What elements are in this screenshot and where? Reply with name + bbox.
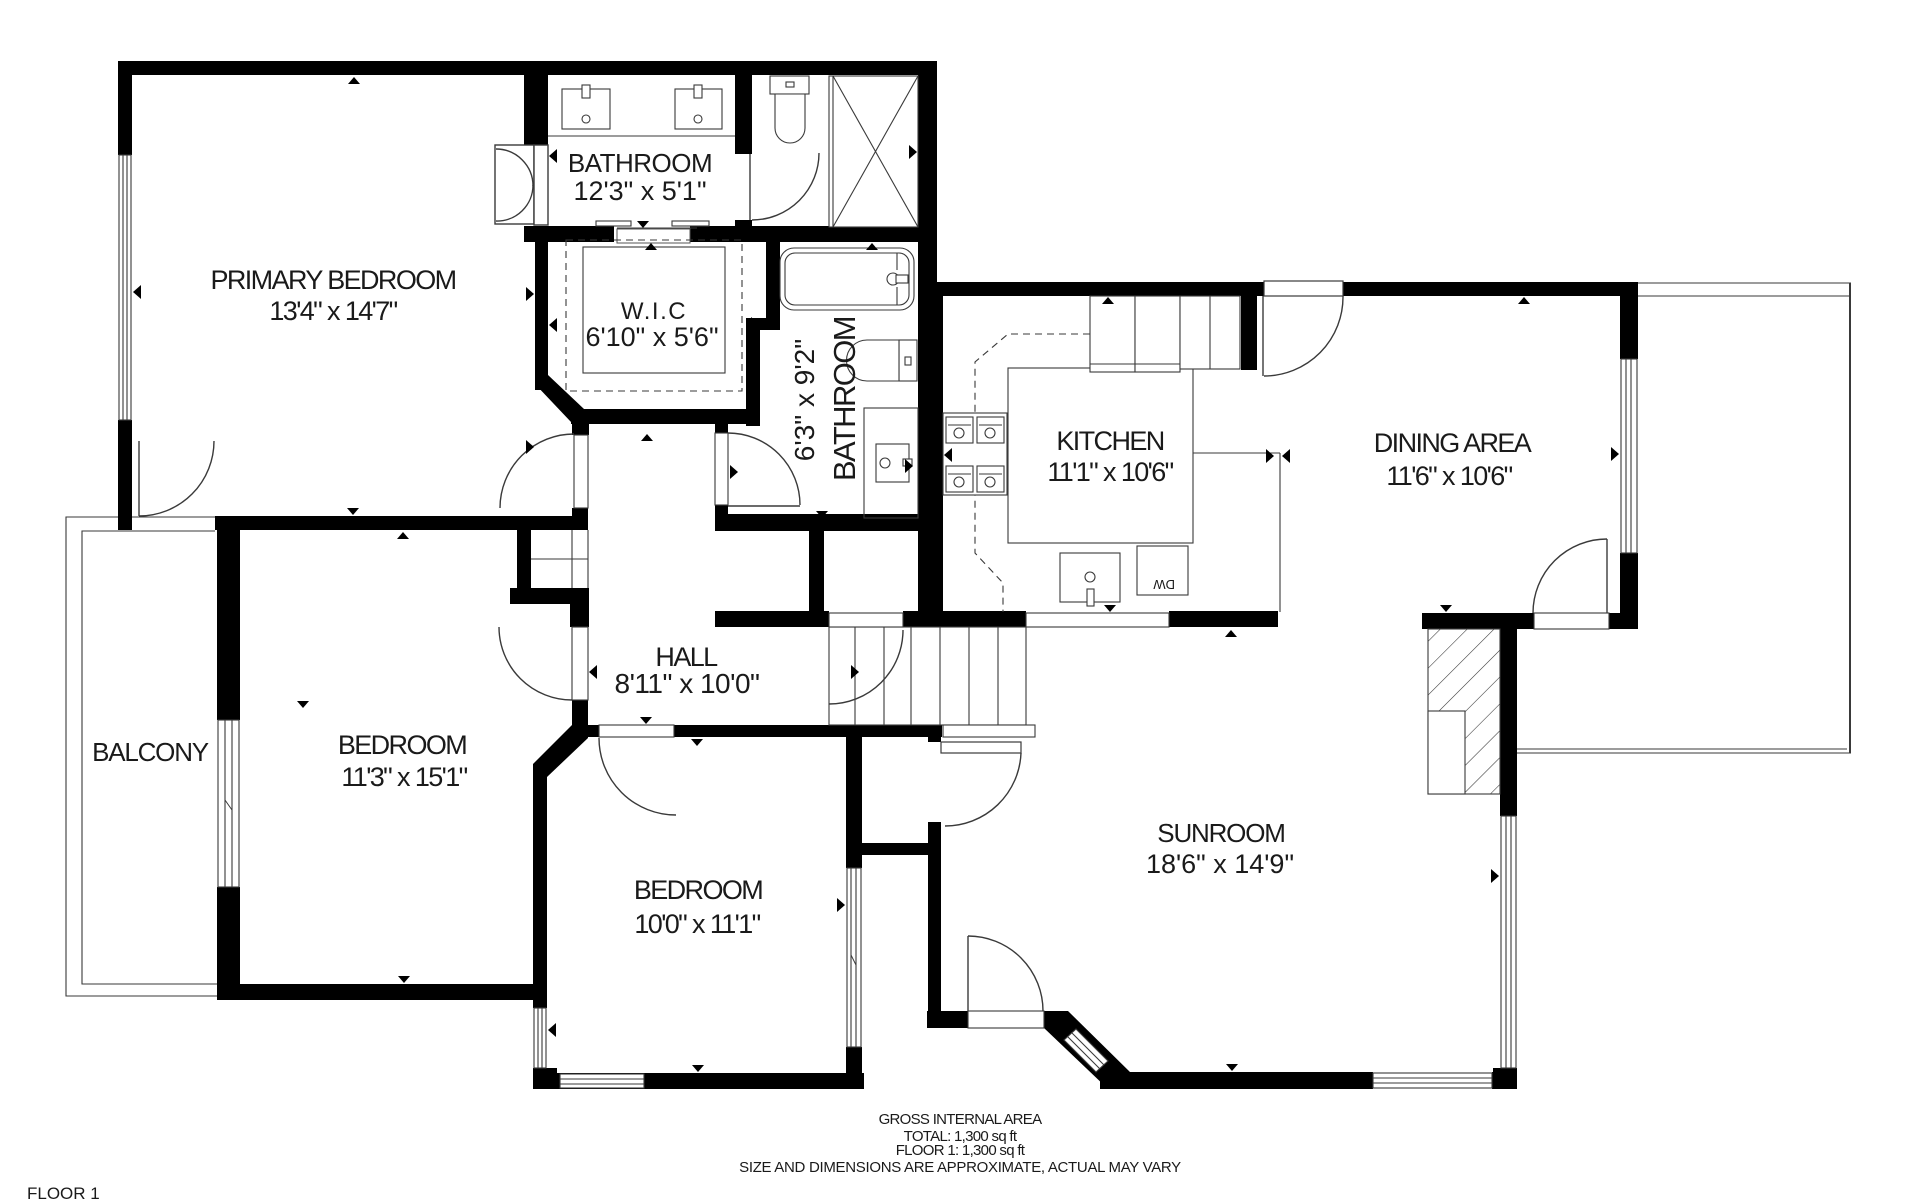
- svg-text:BALCONY: BALCONY: [92, 737, 209, 767]
- svg-text:PRIMARY BEDROOM: PRIMARY BEDROOM: [210, 265, 455, 295]
- svg-text:13'4" x 14'7": 13'4" x 14'7": [269, 296, 397, 326]
- svg-text:11'6" x 10'6": 11'6" x 10'6": [1386, 461, 1512, 491]
- svg-text:BATHROOM: BATHROOM: [568, 148, 712, 178]
- svg-text:DINING AREA: DINING AREA: [1374, 428, 1532, 458]
- svg-text:6'3" x 9'2": 6'3" x 9'2": [789, 339, 820, 461]
- svg-text:BATHROOM: BATHROOM: [827, 317, 862, 481]
- svg-text:DW: DW: [1153, 577, 1175, 592]
- svg-text:SIZE AND DIMENSIONS ARE APPROX: SIZE AND DIMENSIONS ARE APPROXIMATE, ACT…: [739, 1159, 1181, 1176]
- svg-text:18'6" x 14'9": 18'6" x 14'9": [1146, 849, 1294, 879]
- svg-text:BEDROOM: BEDROOM: [338, 730, 466, 760]
- svg-text:GROSS INTERNAL AREA: GROSS INTERNAL AREA: [879, 1111, 1043, 1128]
- svg-text:12'3" x 5'1": 12'3" x 5'1": [573, 176, 706, 206]
- svg-text:W.I.C: W.I.C: [621, 298, 687, 325]
- svg-text:FLOOR 1: 1,300 sq ft: FLOOR 1: 1,300 sq ft: [896, 1142, 1026, 1159]
- svg-text:SUNROOM: SUNROOM: [1157, 818, 1284, 848]
- svg-text:FLOOR 1: FLOOR 1: [27, 1184, 100, 1200]
- svg-text:6'10" x 5'6": 6'10" x 5'6": [585, 322, 718, 352]
- svg-text:BEDROOM: BEDROOM: [634, 875, 762, 905]
- svg-text:11'1" x 10'6": 11'1" x 10'6": [1047, 457, 1173, 487]
- svg-text:KITCHEN: KITCHEN: [1056, 426, 1163, 456]
- svg-text:10'0" x 11'1": 10'0" x 11'1": [634, 909, 760, 939]
- svg-text:11'3" x 15'1": 11'3" x 15'1": [341, 762, 467, 792]
- svg-text:8'11" x 10'0": 8'11" x 10'0": [615, 668, 760, 699]
